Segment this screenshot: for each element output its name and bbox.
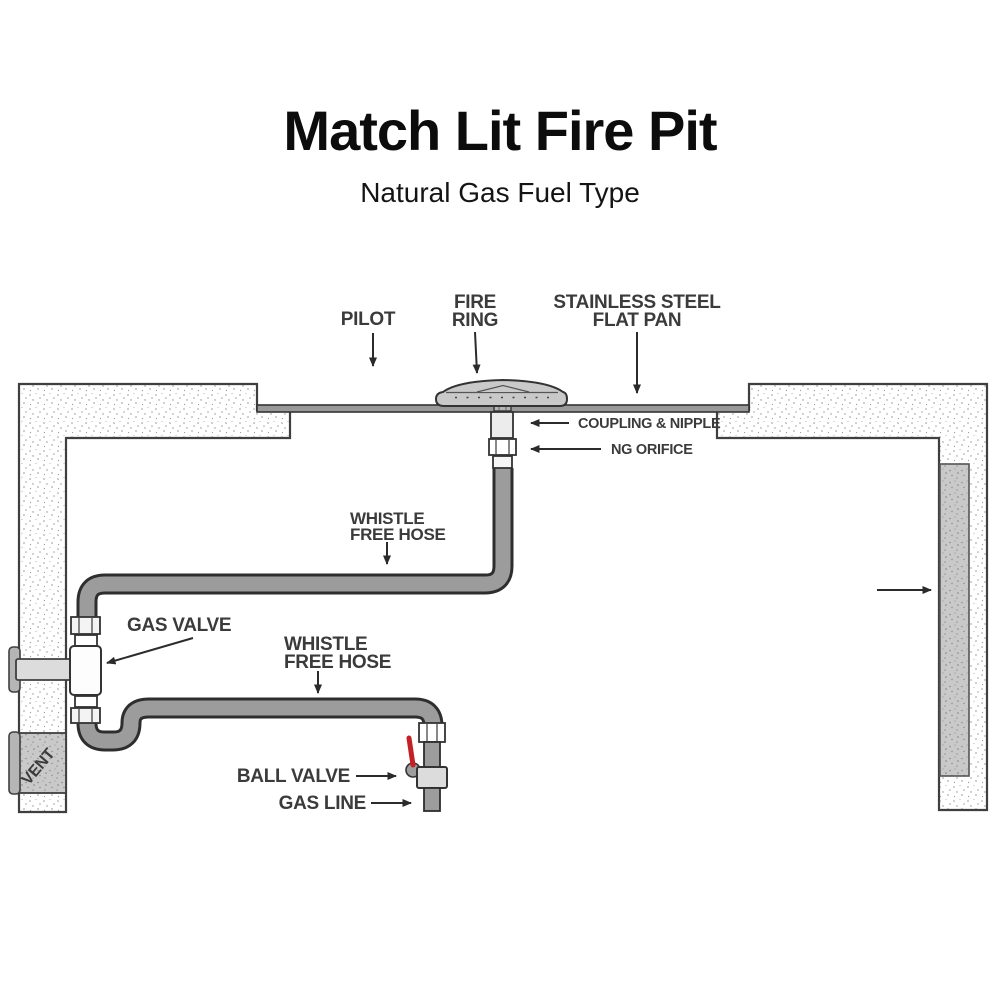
ball-valve-label: BALL VALVE <box>237 766 350 787</box>
pilot-label: PILOT <box>341 309 396 330</box>
whistle-free-hose-lower-pipe <box>87 708 433 741</box>
coupling-fitting <box>491 412 513 438</box>
valve-riser-pipe <box>424 742 440 768</box>
coupling-nipple-label: COUPLING & NIPPLE <box>578 416 721 432</box>
fire-ring-arrow <box>475 332 477 373</box>
valve-stem <box>16 659 73 680</box>
fire-ring-label-line2: RING <box>452 310 498 331</box>
right-wall-inner-panel <box>940 464 969 776</box>
whistle-free-hose-upper-pipe <box>87 468 503 620</box>
whistle-hose-lower-label-line2: FREE HOSE <box>284 652 391 673</box>
valve-top-fitting <box>71 617 100 646</box>
ball-valve-handle <box>409 738 413 765</box>
gas-valve-arrow <box>107 638 193 663</box>
fire-pit-diagram: PILOT FIRE RING STAINLESS STEEL FLAT PAN… <box>0 0 1000 1000</box>
flat-pan-label-line2: FLAT PAN <box>593 310 682 331</box>
gas-line-label: GAS LINE <box>279 793 366 814</box>
gas-valve-label: GAS VALVE <box>127 615 231 636</box>
ng-orifice-fitting <box>489 439 516 468</box>
ball-valve-assembly <box>406 723 447 811</box>
ng-orifice-label: NG ORIFICE <box>611 442 693 458</box>
gas-valve-body <box>70 646 101 695</box>
hose-coupling <box>419 723 445 742</box>
ball-valve-body <box>417 767 447 788</box>
fire-ring <box>436 380 567 406</box>
vent-outer-tab <box>9 732 20 794</box>
valve-bottom-fitting <box>71 696 100 723</box>
whistle-hose-upper-label-line2: FREE HOSE <box>350 525 446 544</box>
gas-line-pipe <box>424 788 440 811</box>
